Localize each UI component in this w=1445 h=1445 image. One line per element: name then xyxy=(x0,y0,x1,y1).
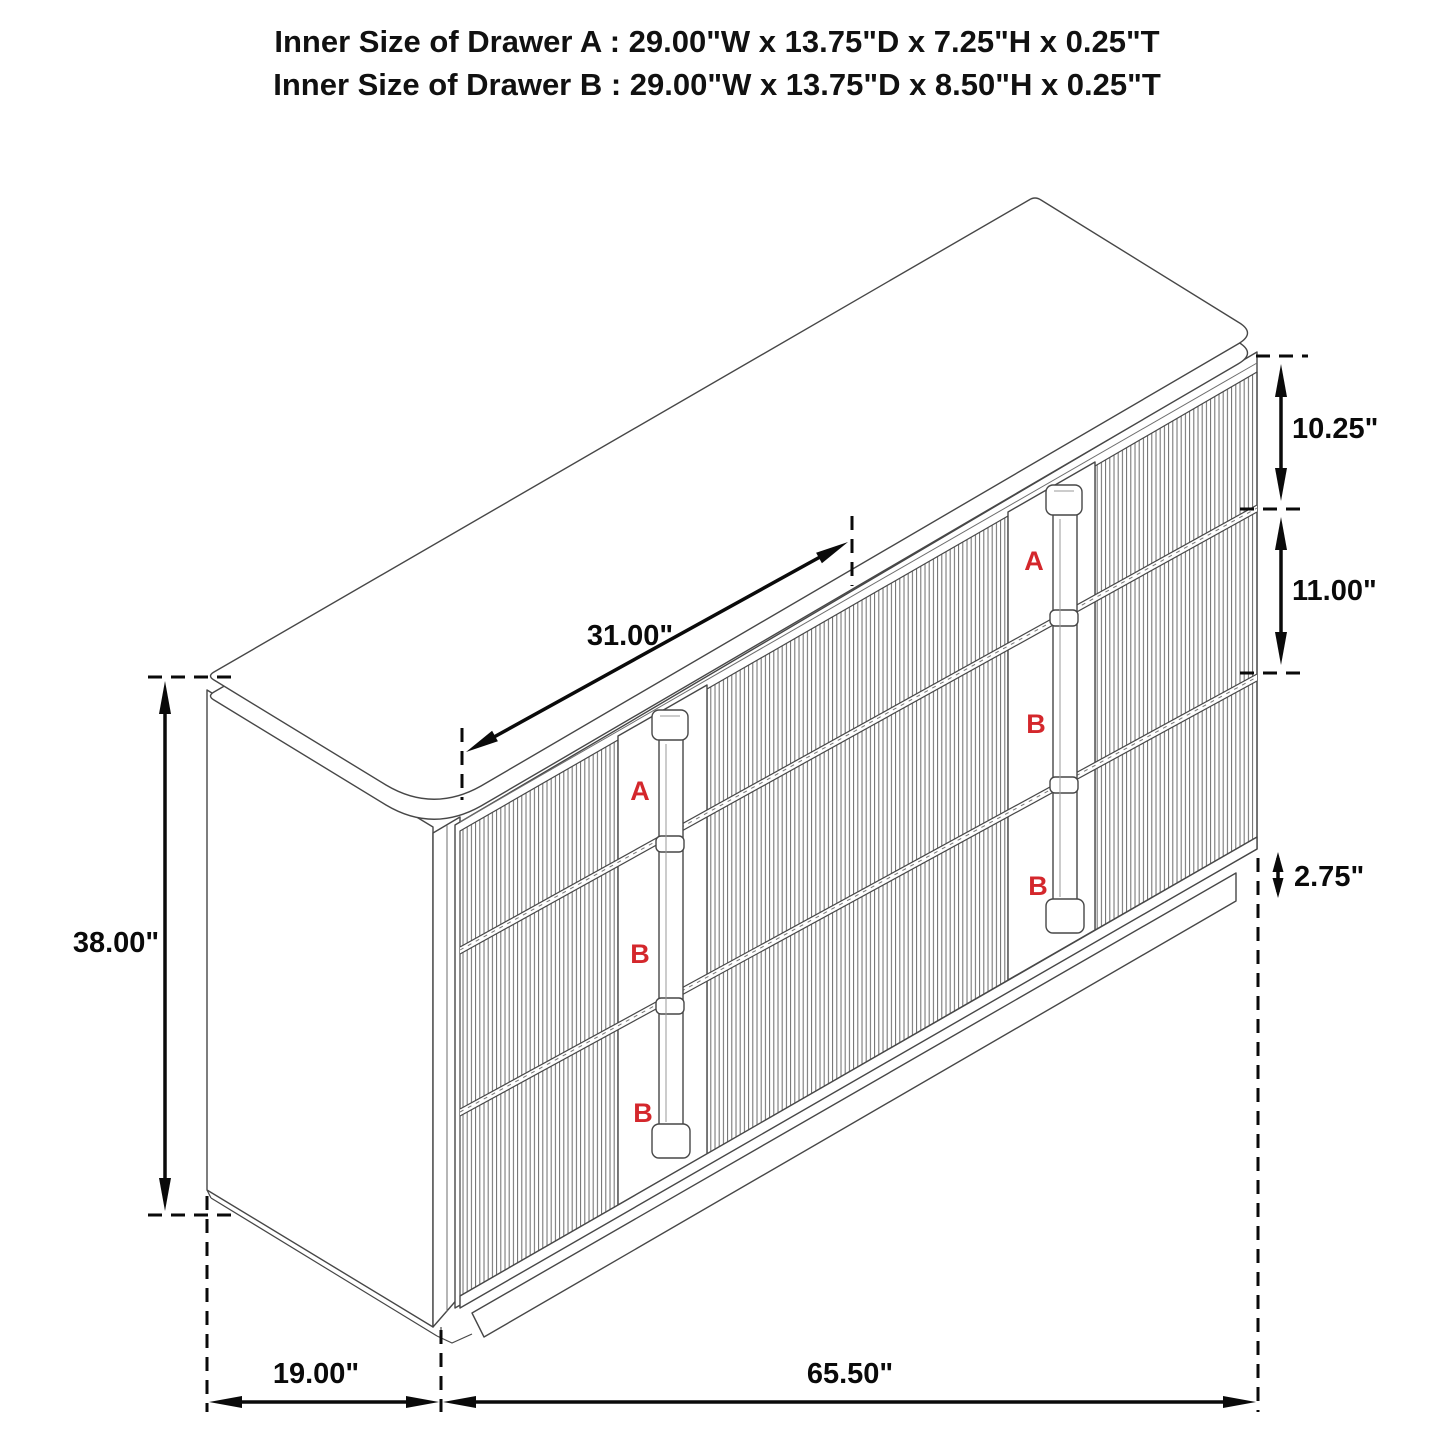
top-width-label: 31.00" xyxy=(587,620,673,652)
drawer-a-height-label: 10.25" xyxy=(1292,413,1378,445)
fluted-section-right xyxy=(1095,372,1257,930)
fluted-section-left xyxy=(460,740,618,1296)
title-block: Inner Size of Drawer A : 29.00"W x 13.75… xyxy=(273,24,1161,102)
dimension-width: 65.50" xyxy=(443,1358,1256,1408)
drawer-b-height-label: 11.00" xyxy=(1292,575,1377,607)
title-line-1: Inner Size of Drawer A : 29.00"W x 13.75… xyxy=(274,24,1159,59)
drawer-label-left-b1: B xyxy=(630,939,650,969)
drawer-label-left-a: A xyxy=(630,776,650,806)
base-height-label: 2.75" xyxy=(1294,861,1364,893)
dimension-drawer-a: 10.25" xyxy=(1240,356,1378,509)
dimension-drawer-b: 11.00" xyxy=(1240,517,1377,673)
drawer-label-right-b2: B xyxy=(1028,871,1048,901)
drawer-label-right-b1: B xyxy=(1026,709,1046,739)
title-line-2: Inner Size of Drawer B : 29.00"W x 13.75… xyxy=(273,67,1161,102)
dimension-base: 2.75" xyxy=(1273,852,1365,898)
dresser-dimension-diagram: A B B A B B 38.00" 31.00" 10.25" xyxy=(0,0,1445,1445)
depth-label: 19.00" xyxy=(273,1358,359,1390)
dresser-isometric-drawing: A B B A B B xyxy=(207,198,1257,1343)
drawer-label-left-b2: B xyxy=(633,1098,653,1128)
dimension-depth: 19.00" xyxy=(209,1358,439,1408)
drawer-label-right-a: A xyxy=(1024,546,1044,576)
width-label: 65.50" xyxy=(807,1358,893,1390)
height-label: 38.00" xyxy=(73,927,159,959)
